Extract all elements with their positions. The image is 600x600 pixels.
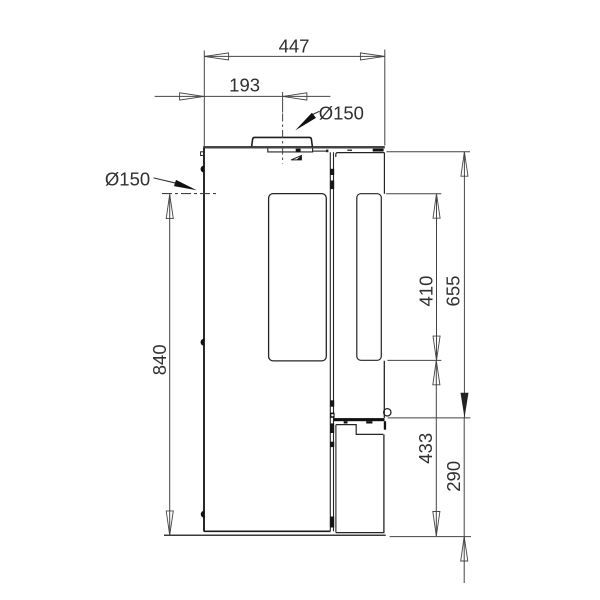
svg-text:655: 655 [442,276,463,307]
svg-text:290: 290 [443,461,464,492]
svg-text:Ø150: Ø150 [105,168,150,189]
svg-text:Ø150: Ø150 [319,103,364,124]
svg-text:193: 193 [229,74,260,95]
svg-text:840: 840 [149,344,170,375]
svg-text:410: 410 [415,276,436,307]
svg-text:433: 433 [415,433,436,464]
svg-text:447: 447 [279,35,310,56]
